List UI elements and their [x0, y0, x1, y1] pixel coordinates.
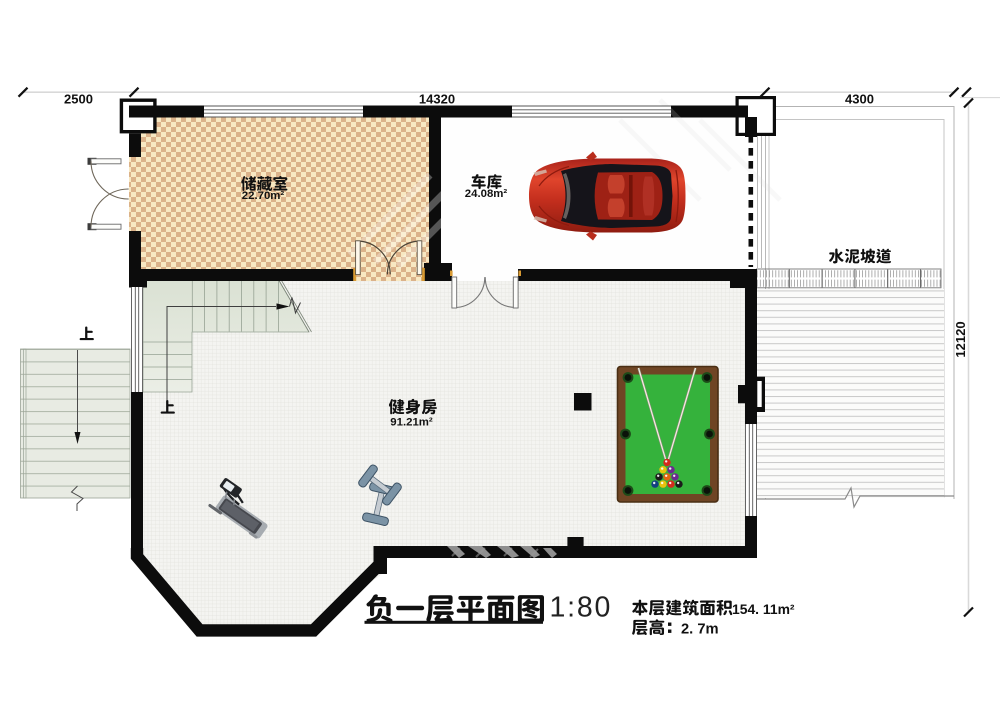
svg-text:24.08m²: 24.08m² — [465, 188, 508, 200]
svg-text:12120: 12120 — [953, 321, 968, 357]
svg-text:22.70m²: 22.70m² — [242, 190, 285, 202]
svg-text:4300: 4300 — [845, 91, 874, 106]
svg-text:154. 11m²: 154. 11m² — [732, 601, 795, 617]
svg-text:2500: 2500 — [64, 91, 93, 106]
svg-text:91.21m²: 91.21m² — [390, 417, 433, 429]
svg-text:14320: 14320 — [419, 91, 455, 106]
svg-text:1:80: 1:80 — [550, 592, 613, 624]
svg-text:2. 7m: 2. 7m — [681, 622, 719, 638]
